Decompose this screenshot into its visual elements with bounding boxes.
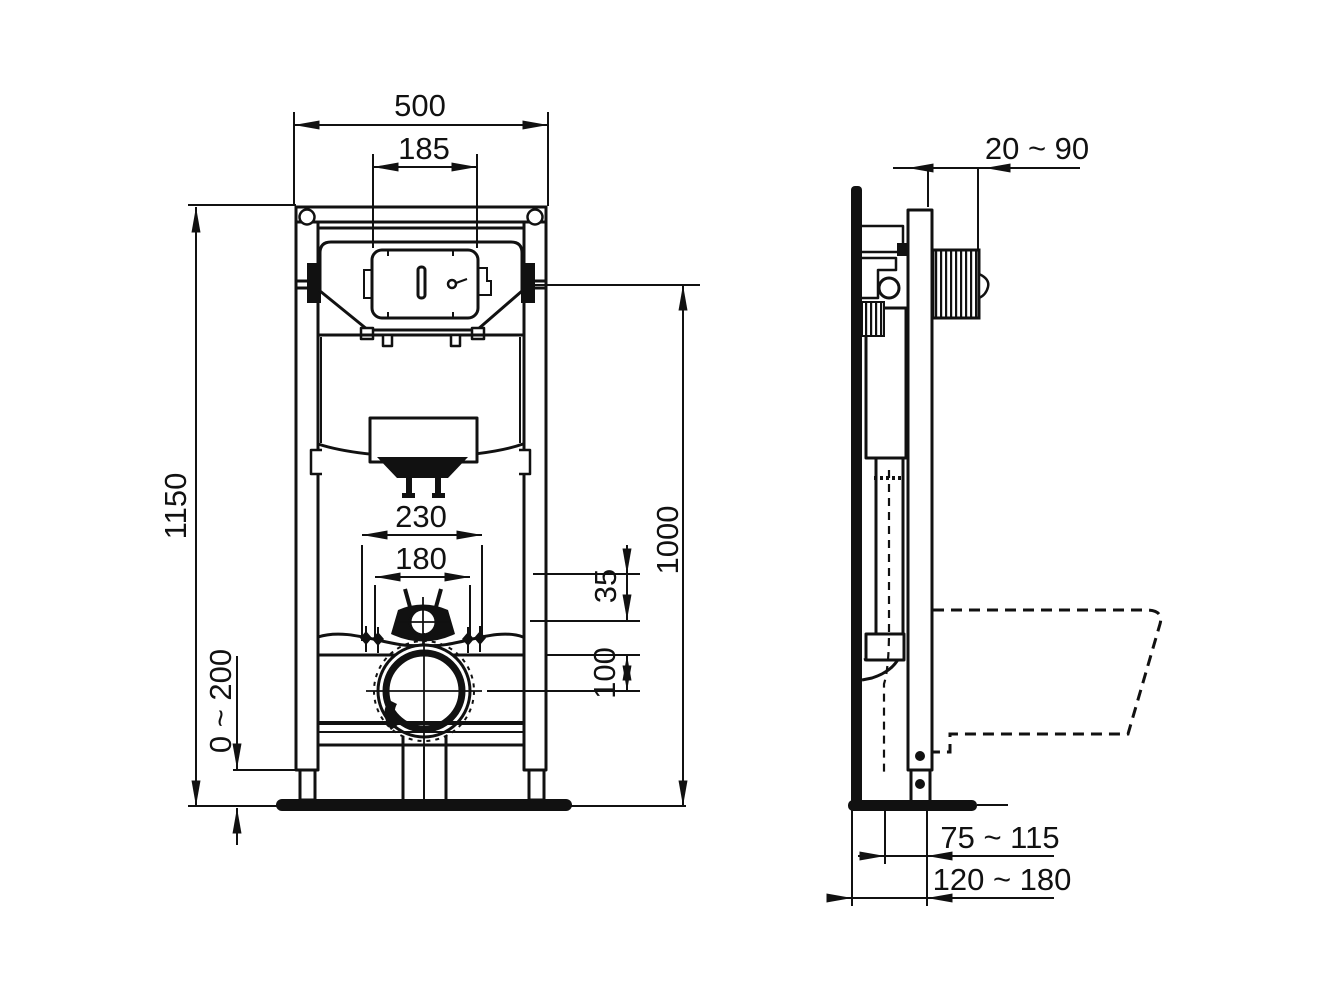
- fixing-hole-left: [300, 210, 315, 225]
- adjustable-foot-left: [300, 770, 315, 800]
- supply-prong-right: [436, 589, 441, 607]
- technical-drawing-page: 500 185 1150 0 ~ 200 1000 230: [0, 0, 1337, 1003]
- dim-label-feet-adjust: 0 ~ 200: [203, 649, 238, 753]
- supply-prong-left: [405, 589, 410, 607]
- plate-pin: [448, 280, 456, 288]
- dim-feet-adjust: 0 ~ 200: [203, 649, 296, 845]
- plate-nub: [979, 274, 988, 298]
- dim-label-plate-width: 185: [398, 131, 450, 166]
- cistern-hook-left: [311, 450, 322, 474]
- dim-depth-max: 120 ~ 180: [828, 862, 1071, 898]
- cistern-access-window: [370, 418, 477, 462]
- bolt-2: [372, 632, 384, 646]
- dim-label-depth-max: 120 ~ 180: [933, 862, 1072, 897]
- side-view: 20 ~ 90 75 ~ 115 120 ~ 180: [828, 131, 1161, 906]
- flush-plate-housing: [320, 242, 522, 339]
- frame-top-rail: [296, 207, 546, 222]
- cistern-hook-right: [519, 450, 530, 474]
- fixing-hole-right: [528, 210, 543, 225]
- dim-label-frame-width: 500: [394, 88, 446, 123]
- bolt-3: [462, 632, 474, 646]
- dim-label-fixing-outer: 230: [395, 499, 447, 534]
- dim-label-fixing-inner: 180: [395, 541, 447, 576]
- dim-outlet-height: 1000: [522, 285, 700, 806]
- frame-member-side: [908, 210, 932, 803]
- cistern: [311, 335, 530, 498]
- dim-label-frame-height: 1150: [158, 473, 193, 540]
- bracket-upper: [862, 226, 903, 252]
- base-plate-side: [848, 800, 977, 811]
- dim-label-supply-offset: 35: [588, 569, 623, 603]
- wc-pan-outline: [933, 610, 1161, 752]
- plate-slot: [418, 267, 425, 298]
- foot-bolt-upper: [915, 751, 925, 761]
- wall-rail: [851, 186, 862, 804]
- dim-label-depth-min: 75 ~ 115: [940, 820, 1059, 855]
- cistern-notch-right: [451, 335, 460, 346]
- front-view: 500 185 1150 0 ~ 200 1000 230: [158, 88, 700, 845]
- dim-label-drain-offset: 100: [587, 647, 622, 699]
- plate-hatch-block: [933, 250, 979, 318]
- foot-bolt-lower: [915, 779, 925, 789]
- flush-pipe-foot-left: [402, 493, 415, 498]
- cistern-notch-left: [383, 335, 392, 346]
- base-plate: [276, 799, 572, 811]
- bolt-4: [474, 631, 486, 645]
- pipe-bracket: [866, 634, 904, 660]
- member-profile: [908, 210, 932, 770]
- flush-pipe-foot-right: [432, 493, 445, 498]
- bracket-hole: [879, 278, 899, 298]
- drain-centerline: [884, 470, 889, 772]
- flush-plate-side: [933, 250, 988, 318]
- bracket-hatch-block: [862, 302, 884, 336]
- dim-label-plate-depth: 20 ~ 90: [985, 131, 1089, 166]
- cistern-side: [862, 308, 906, 772]
- adjustable-foot-right: [529, 770, 544, 800]
- dim-flush-plate-width: 185: [373, 131, 477, 248]
- flush-bend: [377, 457, 468, 478]
- dim-label-outlet-height: 1000: [650, 506, 685, 575]
